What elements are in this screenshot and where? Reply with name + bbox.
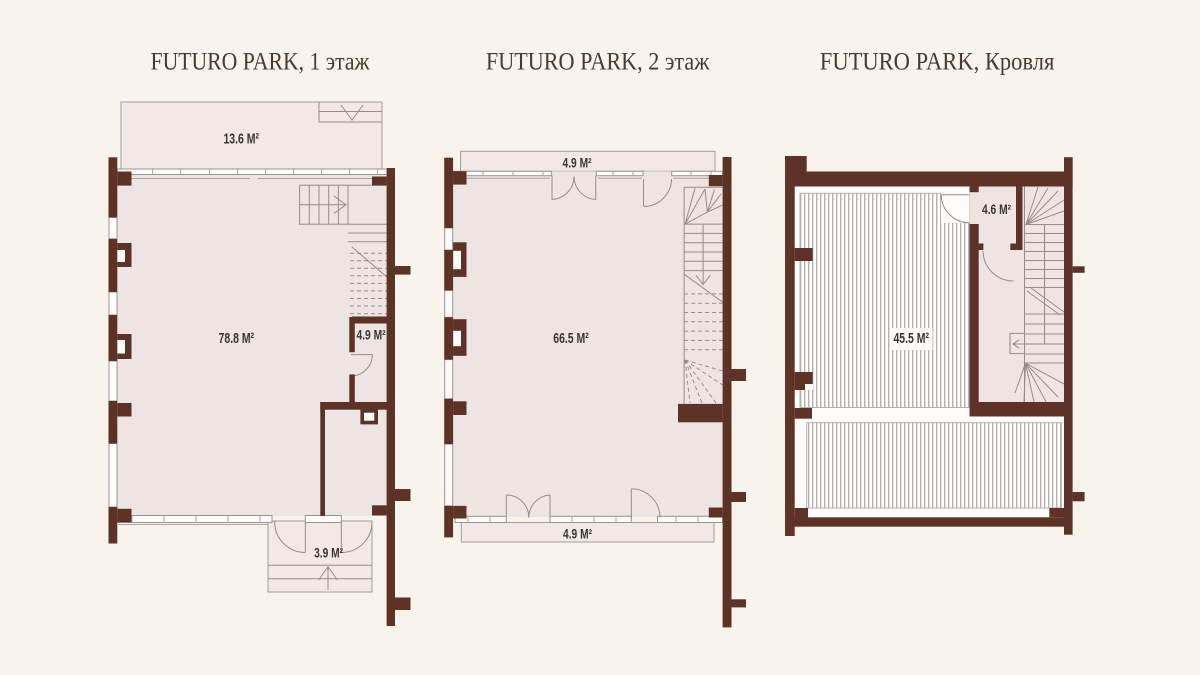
svg-text:13.6 М²: 13.6 М² xyxy=(223,131,259,148)
svg-text:4.9 М²: 4.9 М² xyxy=(563,156,592,171)
svg-text:4.9 М²: 4.9 М² xyxy=(357,327,386,342)
svg-text:4.6 М²: 4.6 М² xyxy=(982,202,1011,217)
svg-text:3.9 М²: 3.9 М² xyxy=(314,545,343,560)
svg-text:78.8 М²: 78.8 М² xyxy=(219,330,255,347)
svg-text:4.9 М²: 4.9 М² xyxy=(563,527,592,542)
svg-text:45.5 М²: 45.5 М² xyxy=(893,330,929,347)
svg-text:FUTURO PARK, Кровля: FUTURO PARK, Кровля xyxy=(820,49,1055,76)
svg-text:FUTURO PARK, 2 этаж: FUTURO PARK, 2 этаж xyxy=(486,49,710,76)
svg-text:FUTURO PARK, 1 этаж: FUTURO PARK, 1 этаж xyxy=(151,49,371,76)
svg-text:66.5 М²: 66.5 М² xyxy=(553,330,589,347)
